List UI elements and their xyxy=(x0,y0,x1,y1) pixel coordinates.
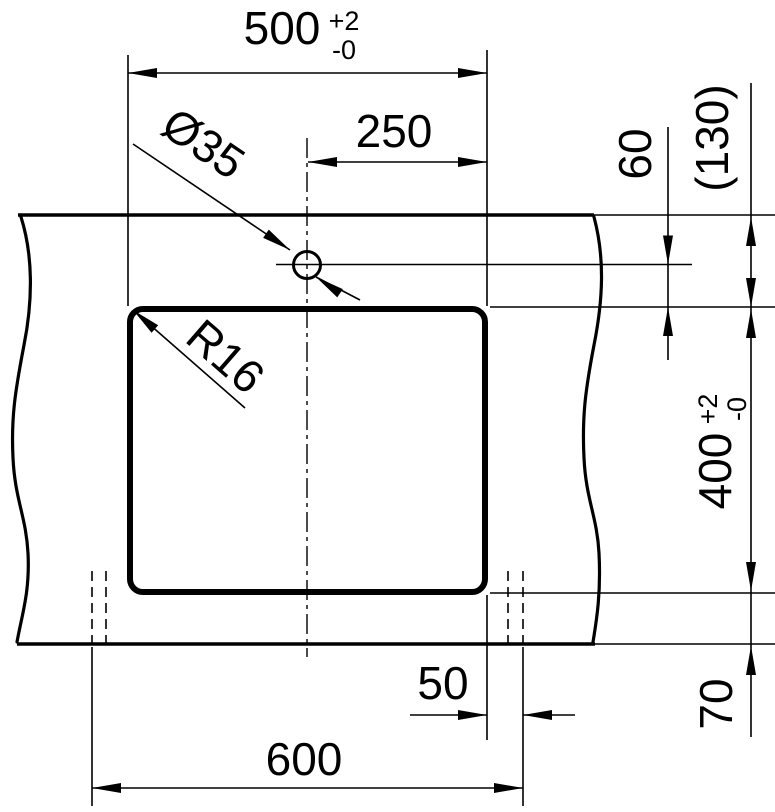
dim-label: 250 xyxy=(356,105,433,157)
dim-label: (130) xyxy=(686,84,738,191)
dim-tolerance-minus: -0 xyxy=(722,397,752,421)
arrowhead xyxy=(663,307,673,336)
dim-width-500: 500 +2 -0 xyxy=(128,2,487,78)
dim-label: R16 xyxy=(177,309,275,404)
technical-drawing: 500 +2 -0 250 Ø35 R16 60 xyxy=(0,0,775,812)
dim-overall-600: 600 xyxy=(92,733,523,793)
arrowhead xyxy=(313,273,343,298)
dim-label: 50 xyxy=(417,657,468,709)
arrowhead xyxy=(523,710,552,720)
arrowhead xyxy=(746,562,756,591)
arrowhead xyxy=(746,217,756,246)
arrowhead xyxy=(494,783,523,793)
arrowhead xyxy=(663,236,673,265)
arrowhead xyxy=(458,710,487,720)
dim-label: 600 xyxy=(266,733,343,785)
dim-tolerance-plus: +2 xyxy=(329,6,360,36)
worktop-panel xyxy=(12,215,775,644)
dim-ref-130: (130) xyxy=(686,84,756,307)
dim-label: 60 xyxy=(609,128,661,179)
dim-label: 500 xyxy=(244,2,321,54)
dim-label: Ø35 xyxy=(153,97,254,189)
break-line-right xyxy=(583,217,601,642)
dim-hole-diameter: Ø35 xyxy=(133,97,360,300)
break-line-left xyxy=(12,217,30,642)
dim-label: 70 xyxy=(690,678,742,729)
dim-tolerance-minus: -0 xyxy=(332,35,356,65)
arrowhead xyxy=(746,309,756,338)
dim-offset-250: 250 xyxy=(308,105,487,167)
arrowhead xyxy=(92,783,121,793)
arrowhead xyxy=(128,68,157,78)
drawing-page: 500 +2 -0 250 Ø35 R16 60 xyxy=(0,0,775,812)
arrowhead xyxy=(458,68,487,78)
arrowhead xyxy=(263,230,293,255)
arrowhead xyxy=(458,157,487,167)
arrowhead xyxy=(308,157,337,167)
dim-tolerance-plus: +2 xyxy=(693,394,723,425)
dim-corner-radius: R16 xyxy=(130,306,275,408)
dim-edge-offset-50: 50 xyxy=(410,657,575,720)
faucet-hole xyxy=(276,252,692,279)
dim-height-400: 400 +2 -0 xyxy=(689,309,756,591)
dim-front-offset-70: 70 xyxy=(690,646,756,730)
arrowhead xyxy=(746,278,756,307)
dim-hole-offset-60: 60 xyxy=(609,127,673,360)
dim-label: 400 xyxy=(689,433,741,510)
arrowhead xyxy=(746,646,756,675)
